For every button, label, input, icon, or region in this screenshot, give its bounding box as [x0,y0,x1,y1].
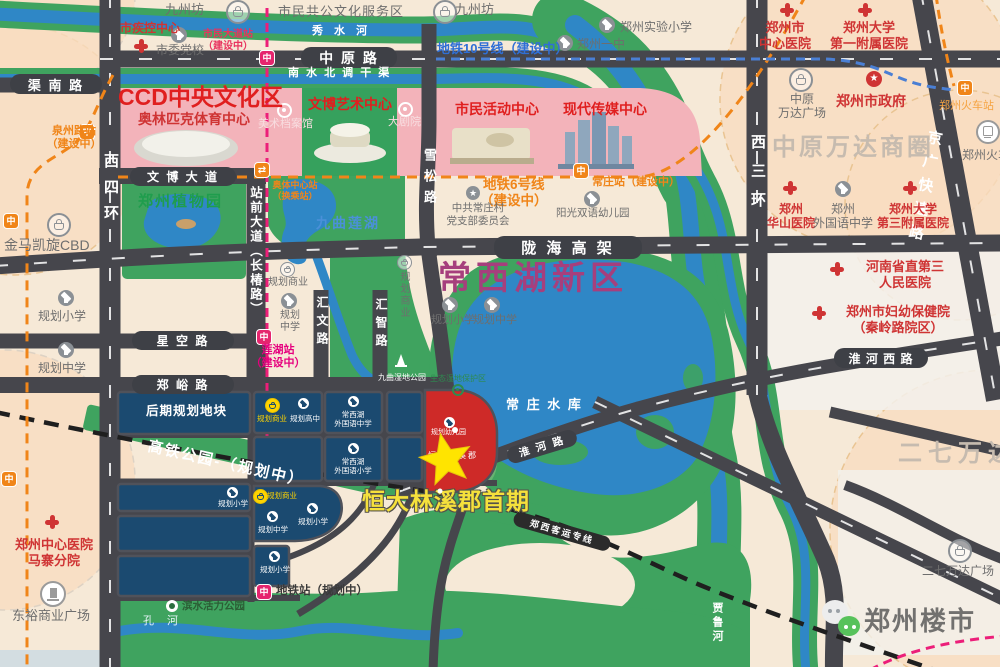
metro-station-icon [3,213,19,229]
poi-botanic-garden: 郑州植物园 [138,193,223,211]
zone-eco: 生态湿地保护区 [430,374,486,384]
block-middle1: 规划中学 [258,525,288,534]
river-label-jialu: 贾鲁河 [709,602,725,644]
station-lianhu: 莲湖站 （建设中） [240,344,316,370]
station-shimin-dadao: 市民大道站 （建设中） [196,29,260,53]
road-label-qunan: 渠 南 路 [10,74,102,94]
poi-erqi-plaza: 二七万达广场 [922,564,994,578]
poi-biz-h: 规划商业 [268,277,308,289]
poi-jiuzhoufang-left: 九州坊 [165,2,204,18]
hospital-cross-icon [783,181,797,195]
block-primary2: 规划小学 [298,517,328,526]
road-label-xingkong: 星 空 路 [132,331,234,350]
shopping-icon [397,255,412,270]
poi-city-gov: 郑州市政府 [836,93,906,110]
station-metro-planned: 地铁站（规划中） [276,585,368,599]
train-station-icon [976,120,1000,144]
yellow-shopping-icon [265,398,280,413]
block-primary3: 规划小学 [260,565,290,574]
area-wanda-circle: 中原万达商圈 [772,134,934,163]
transfer-station-icon [254,162,270,178]
hospital-cross-icon [134,39,148,53]
road-label-xisihuan: 西四环 [100,153,121,231]
station-railway-metro: 郑州火车站 [939,100,994,113]
river-label-kong: 孔 河 [143,615,183,628]
road-label-zhengyu: 郑 峪 路 [132,375,234,394]
metro-line10-label: 地铁10号线（建设中） [437,41,568,57]
hospital-cross-icon [812,306,826,320]
metro-station-icon [256,329,272,345]
poi-biz-vertical: 规划商业 [396,271,411,319]
poi-henan3-hosp: 河南省直第三 人民医院 [850,259,960,290]
poi-wenbo-art: 文博艺术中心 [308,96,392,113]
area-erqi-circle: 二七万达商圈 [898,440,1000,469]
poi-olympic-center: 奥林匹克体育中心 [138,111,250,128]
road-label-xuesong: 雪松路 [420,148,439,211]
station-changzhuang: 常庄站（建设中） [592,176,680,189]
hospital-cross-icon [858,3,872,17]
school-icon [348,396,359,407]
school-icon [584,191,600,207]
poi-party-branch: 中共常庄村 党支部委员会 [438,202,518,227]
school-icon [298,398,309,409]
road-label-zhanqian: 站前大道（长椿路） [246,186,265,317]
road-label-wenbo-ave: 文 博 大 道 [130,167,236,186]
metro-station-icon [256,584,272,600]
government-star-icon [866,71,882,87]
poi-shiyan-primary: 郑州实验小学 [620,20,692,34]
road-label-longhai: 陇 海 高 架 [494,236,642,259]
block-foreign-ps: 常西湖 外国语小学 [330,457,376,475]
poi-mazhai-hosp: 郑州中心医院 马寨分院 [6,537,102,568]
eco-dot-icon [452,384,464,396]
block-biz1: 规划商业 [257,414,287,423]
metro-station-icon [1,471,17,487]
school-icon [348,443,359,454]
block-high-school: 规划高中 [290,414,320,423]
canal-label-nanshuibeidiao: 南 水 北 调 干 渠 [288,67,391,80]
poi-jiuzhoufang-right: 九州坊 [455,2,494,18]
block-primary1: 规划小学 [218,499,248,508]
lighthouse-icon [397,354,405,365]
poi-plan-primary-center: 规划小学 [431,314,475,327]
hospital-cross-icon [45,515,59,529]
road-label-huiwen: 汇文路 [314,296,331,350]
road-label-zhongyuan: 中 原 路 [301,47,397,68]
lake-jiuqu: 九曲莲湖 [316,215,380,232]
station-quanzhou: 泉州路站 （建设中） [36,125,112,151]
metro-station-icon [957,80,973,96]
school-icon [58,290,74,306]
road-label-huaihe-west: 淮 河 西 路 [834,348,928,368]
poi-fuyou-hosp: 郑州市妇幼保健院 （秦岭路院区） [832,304,964,335]
school-icon [307,503,318,514]
shopping-icon [280,262,295,277]
shopping-icon [789,68,813,92]
school-icon [281,293,297,309]
metro-station-icon [259,50,275,66]
park-dot-icon [166,600,178,612]
school-icon [484,297,500,313]
poi-foreign-middle: 郑州 外国语中学 [806,202,880,231]
poi-wanda-plaza: 中原 万达广场 [774,92,830,121]
poi-railway-station: 郑州火车站 [962,148,1000,162]
watermark-zhengzhou-loushi: 郑州楼市 [864,606,976,637]
school-icon [267,511,278,522]
project-star-marker [413,427,483,497]
poi-cdc: 市疾控中心 [120,21,180,35]
poi-yangguang-kg: 阳光双语幼儿园 [556,207,630,220]
hospital-cross-icon [780,3,794,17]
shopping-icon [226,0,250,24]
building-icon [40,581,66,607]
poi-dongyu-plaza: 东裕商业广场 [12,608,90,624]
shopping-icon [433,0,457,24]
poi-art-archive: 美术档案馆 [258,118,313,131]
hospital-cross-icon [830,262,844,276]
school-icon [442,297,458,313]
party-branch-icon [466,186,480,200]
block-houqi: 后期规划地块 [146,404,227,419]
wechat-icon-green [838,616,860,636]
yellow-shopping-icon [253,489,268,504]
road-label-huizhi: 汇智路 [373,298,390,352]
poi-grand-theater: 大剧院 [388,116,421,129]
poi-media-center: 现代传媒中心 [563,101,647,118]
area-civic-service: 市民共公文化服务区 [278,4,404,20]
station-aoti-center: 奥体中心站 （换乘站） [264,180,326,202]
poi-plan-middle-west: 规划中学 [38,361,86,375]
school-icon [58,342,74,358]
poi-civic-activity: 市民活动中心 [455,101,539,118]
shopping-icon [47,213,71,237]
river-label-xiushui: 秀 水 河 [312,25,371,38]
poi-hosp-center: 郑州市 中心医院 [750,20,820,51]
poi-plan-middle-center: 规划中学 [473,314,517,327]
poi-plan-primary-west: 规划小学 [38,309,86,323]
metro-station-icon [573,163,589,179]
area-jinma-cbd: 金马凯旋CBD [4,237,90,254]
school-icon [835,181,851,197]
poi-middle-center: 规划 中学 [274,310,306,334]
area-ccd-title: CCD中央文化区 [118,84,283,112]
school-icon [599,17,615,33]
lake-changzhuang-reservoir: 常 庄 水 库 [506,397,583,413]
poi-no1-middle: 郑州一中 [577,37,625,51]
area-changxihu-district: 常西湖新区 [438,258,628,298]
poi-hosp-zhengda1: 郑州大学 第一附属医院 [824,20,914,51]
park-wetland: 九曲湿地公园 [378,373,426,383]
map-canvas[interactable]: 中 原 路 渠 南 路 文 博 大 道 星 空 路 郑 峪 路 陇 海 高 架 … [0,0,1000,667]
park-binshui: 滨水活力公园 [182,600,245,613]
block-foreign-ms: 常西湖 外国语中学 [330,410,376,428]
shopping-icon [948,539,972,563]
landmark-ring-icon [398,102,413,117]
school-icon [269,551,280,562]
poi-zhengda3-hosp: 郑州大学 第三附属医院 [870,202,956,231]
block-biz2: 规划商业 [267,491,297,500]
school-icon [227,487,238,498]
